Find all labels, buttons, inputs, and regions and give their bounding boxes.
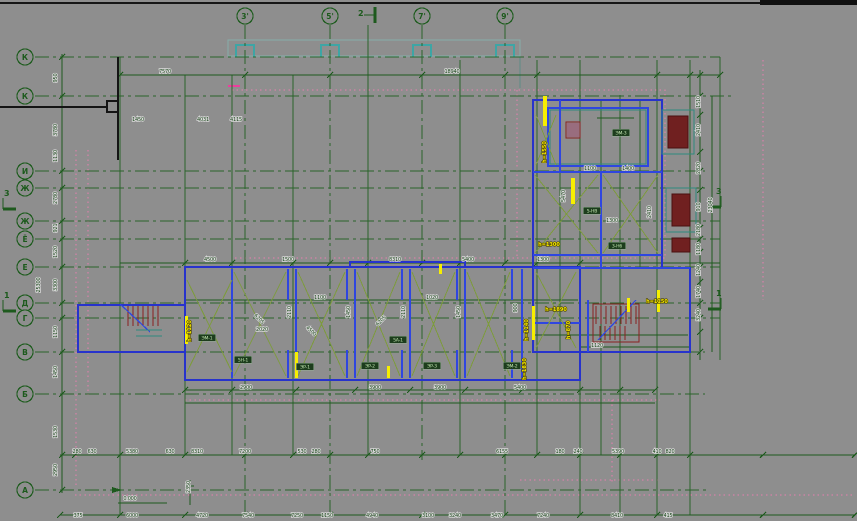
dimension-text: 4720	[196, 513, 208, 519]
axis-label: Б	[22, 390, 28, 399]
axis-label: 5'	[326, 12, 334, 21]
axis-label: И	[22, 167, 28, 176]
dimension-text: 6205	[375, 315, 388, 328]
dimension-text: 1130	[53, 150, 59, 162]
dimension-text: 2410	[647, 206, 653, 218]
dimension-text: 280	[312, 449, 321, 455]
dimension-text: 1450	[346, 306, 352, 318]
dimension-text: 2950	[53, 464, 59, 476]
room-label: 5Н-1	[238, 358, 248, 364]
highlight-label: h=1120	[187, 320, 193, 342]
dimension-text: 1100	[314, 295, 326, 301]
room-label: 3-Н6	[612, 244, 622, 250]
dimension-text: 1510	[696, 96, 702, 108]
floor-plan-svg: 3'5'7'9'ККИЖЖЁЕДГВБА 23131 1894075701450…	[0, 0, 857, 521]
dimension-text: 1300	[606, 218, 618, 224]
highlight-label: h=1890	[545, 307, 567, 313]
dimension-text: 2900	[240, 385, 252, 391]
dimension-text: 6000	[126, 513, 138, 519]
room-label: ЭМ-3	[616, 131, 627, 137]
dimension-text: 5390	[612, 449, 624, 455]
axis-label: Ё	[22, 235, 27, 244]
axis-label: К	[22, 92, 29, 101]
dimension-text: 1120	[591, 343, 603, 349]
room-label: ЭМ-2	[507, 364, 518, 370]
dimension-text: 3470	[491, 513, 503, 519]
dimension-text: 375	[74, 513, 83, 519]
dimension-text: 2110	[401, 306, 407, 318]
dimension-text: 2180	[696, 224, 702, 236]
axis-label: А	[22, 486, 28, 495]
dimension-text: 1150	[321, 513, 333, 519]
grid-lines	[35, 25, 735, 515]
dimension-text: 1240	[696, 264, 702, 276]
section-markers: 23131	[3, 7, 722, 311]
dimension-text: 3300	[53, 279, 59, 291]
dimension-text: 23040	[708, 198, 714, 213]
axis-label: К	[22, 53, 29, 62]
dimension-text: 2020	[256, 327, 268, 333]
axis-bubbles: 3'5'7'9'ККИЖЖЁЕДГВБА	[17, 8, 513, 498]
room-label: ЭР-3	[427, 364, 437, 370]
dimension-text: 3100	[422, 513, 434, 519]
dimension-text: 1520	[53, 246, 59, 258]
dimension-text: 7250	[291, 513, 303, 519]
dimension-text: 1530	[53, 426, 59, 438]
dimension-text: 2780	[53, 192, 59, 204]
axis-label: Д	[22, 299, 29, 308]
dimension-text: 5400	[462, 257, 474, 263]
section-label: 3	[4, 189, 10, 198]
dimension-text: 1180	[696, 243, 702, 255]
section-label: 1	[716, 289, 722, 298]
dimension-text: 1450	[132, 117, 144, 123]
axis-label: 9'	[501, 12, 509, 21]
dimension-text: 1450	[53, 366, 59, 378]
dimension-text: 4940	[366, 513, 378, 519]
dimension-text: 5470	[561, 190, 567, 202]
dimension-text: 630	[166, 449, 175, 455]
dimension-text: 530	[298, 449, 307, 455]
dimension-text: 410	[653, 449, 662, 455]
dimension-text: 1450	[456, 306, 462, 318]
dimension-text: 1150	[53, 326, 59, 338]
dimension-text: 3900	[369, 385, 381, 391]
dimension-text: 2410	[696, 124, 702, 136]
dimension-text: 1400	[622, 166, 634, 172]
dimension-text: 1500	[282, 257, 294, 263]
axis-label: В	[22, 348, 28, 357]
dimension-text: 4500	[204, 257, 216, 263]
dimension-text: 900	[513, 304, 519, 313]
highlight-label: h=1300	[538, 242, 560, 248]
axis-label: Ж	[20, 184, 30, 193]
stair-left	[120, 304, 162, 336]
dimension-text: 7200	[239, 449, 251, 455]
stair-right	[593, 300, 639, 342]
room-label: ЭМ-1	[202, 336, 213, 342]
dimension-text: 8410	[611, 513, 623, 519]
dimension-text: 950	[53, 74, 59, 83]
highlight-label: h=870	[566, 320, 572, 339]
section-label: 1	[4, 291, 10, 300]
dimension-text: 8310	[191, 449, 203, 455]
room-label: 5-НВ	[587, 209, 597, 215]
slab-outline	[228, 40, 520, 88]
dimension-text: 820	[666, 449, 675, 455]
room-label: 5А-1	[393, 338, 403, 344]
section-label: 2	[358, 9, 364, 18]
axis-label: 3'	[241, 12, 249, 21]
room-label: ЭР-1	[300, 365, 310, 371]
axis-label: Ж	[20, 217, 30, 226]
dimension-text: 6155	[496, 449, 508, 455]
highlight-label: h=1140	[524, 319, 530, 341]
dimension-text: 25300	[36, 278, 42, 293]
dimension-text: 1740	[696, 286, 702, 298]
dimension-text: 5400	[514, 385, 526, 391]
dimension-text: 415	[664, 513, 673, 519]
dimension-text: 921	[53, 224, 59, 233]
dimension-text: 3780	[53, 124, 59, 136]
highlight-label: h=1550	[542, 141, 548, 163]
dimension-text: 750	[371, 449, 380, 455]
dimension-text: 1300	[537, 257, 549, 263]
section-label: 3	[716, 187, 722, 196]
dimension-text: 7570	[159, 69, 171, 75]
dimension-text: 0.000	[123, 496, 136, 502]
dimension-text: 2110	[287, 306, 293, 318]
highlight-label: h=1150	[646, 299, 668, 305]
dimension-text: 3240	[696, 309, 702, 321]
dimension-text: 180	[556, 449, 565, 455]
dimension-text: 630	[88, 449, 97, 455]
dimension-text: 3900	[434, 385, 446, 391]
dimension-text: 6205	[252, 313, 265, 326]
top-border	[0, 0, 857, 5]
dimension-text: 280	[73, 449, 82, 455]
axis-label: Е	[22, 263, 27, 272]
dimension-text: 1100	[584, 166, 596, 172]
door-symbols	[566, 110, 696, 252]
dimension-text: 4115	[230, 117, 242, 123]
dimension-text: 4500	[304, 325, 317, 338]
dimension-text: 910	[696, 203, 702, 212]
dimension-text: 240	[574, 449, 583, 455]
room-label: ЭР-2	[365, 364, 375, 370]
highlight-label: h=1830	[522, 358, 528, 380]
dimension-texts: 1894075701450403141154500150083105400130…	[36, 69, 714, 519]
axis-label: Г	[23, 314, 28, 323]
dimension-text: 7540	[242, 513, 254, 519]
axis-label: 7'	[418, 12, 426, 21]
ucs-marker	[0, 57, 118, 160]
dimension-text: 8310	[389, 257, 401, 263]
cad-drawing-canvas[interactable]: 3'5'7'9'ККИЖЖЁЕДГВБА 23131 1894075701450…	[0, 0, 857, 521]
dimension-text: 7240	[537, 513, 549, 519]
dimension-text: 4031	[197, 117, 209, 123]
dimension-text: 18940	[445, 69, 460, 75]
dimension-text: 2350	[186, 481, 192, 493]
dimension-text: 1020	[426, 295, 438, 301]
dimension-text: 2820	[696, 162, 702, 174]
axis-arrowhead	[112, 487, 122, 493]
dimension-text: 5380	[126, 449, 138, 455]
dimension-text: 3240	[449, 513, 461, 519]
